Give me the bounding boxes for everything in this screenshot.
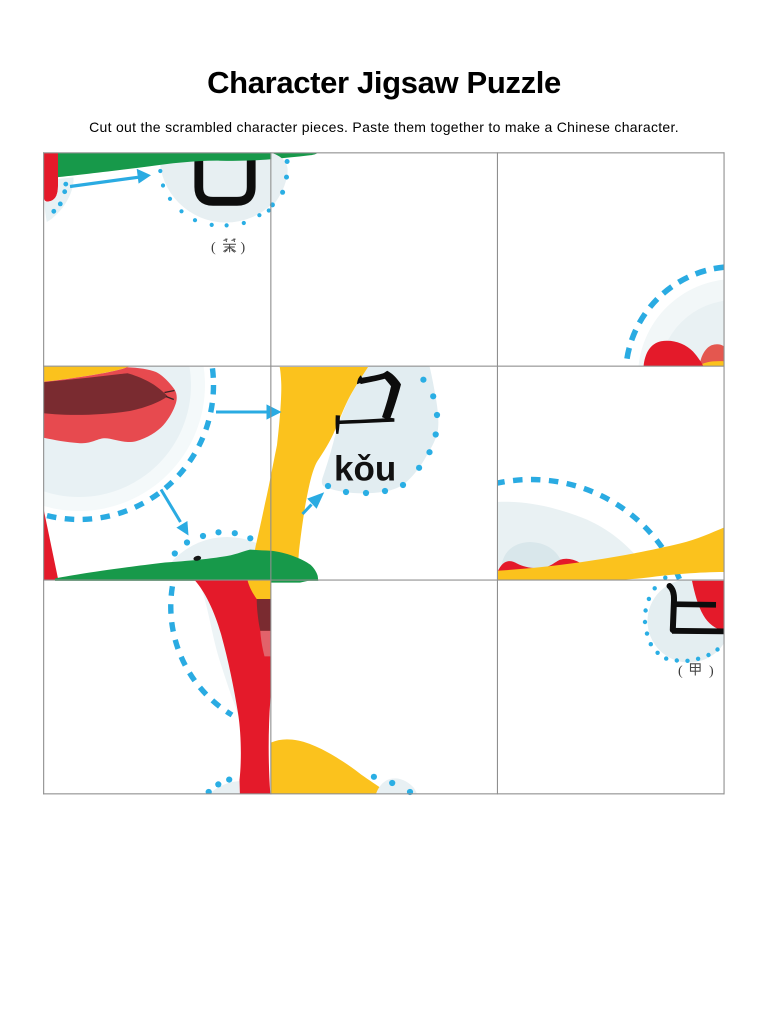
svg-text:): ) (709, 664, 714, 679)
svg-text:(: ( (211, 241, 216, 256)
svg-text:(: ( (678, 664, 683, 679)
svg-text:): ) (241, 241, 246, 256)
svg-text:kǒu: kǒu (334, 450, 396, 489)
